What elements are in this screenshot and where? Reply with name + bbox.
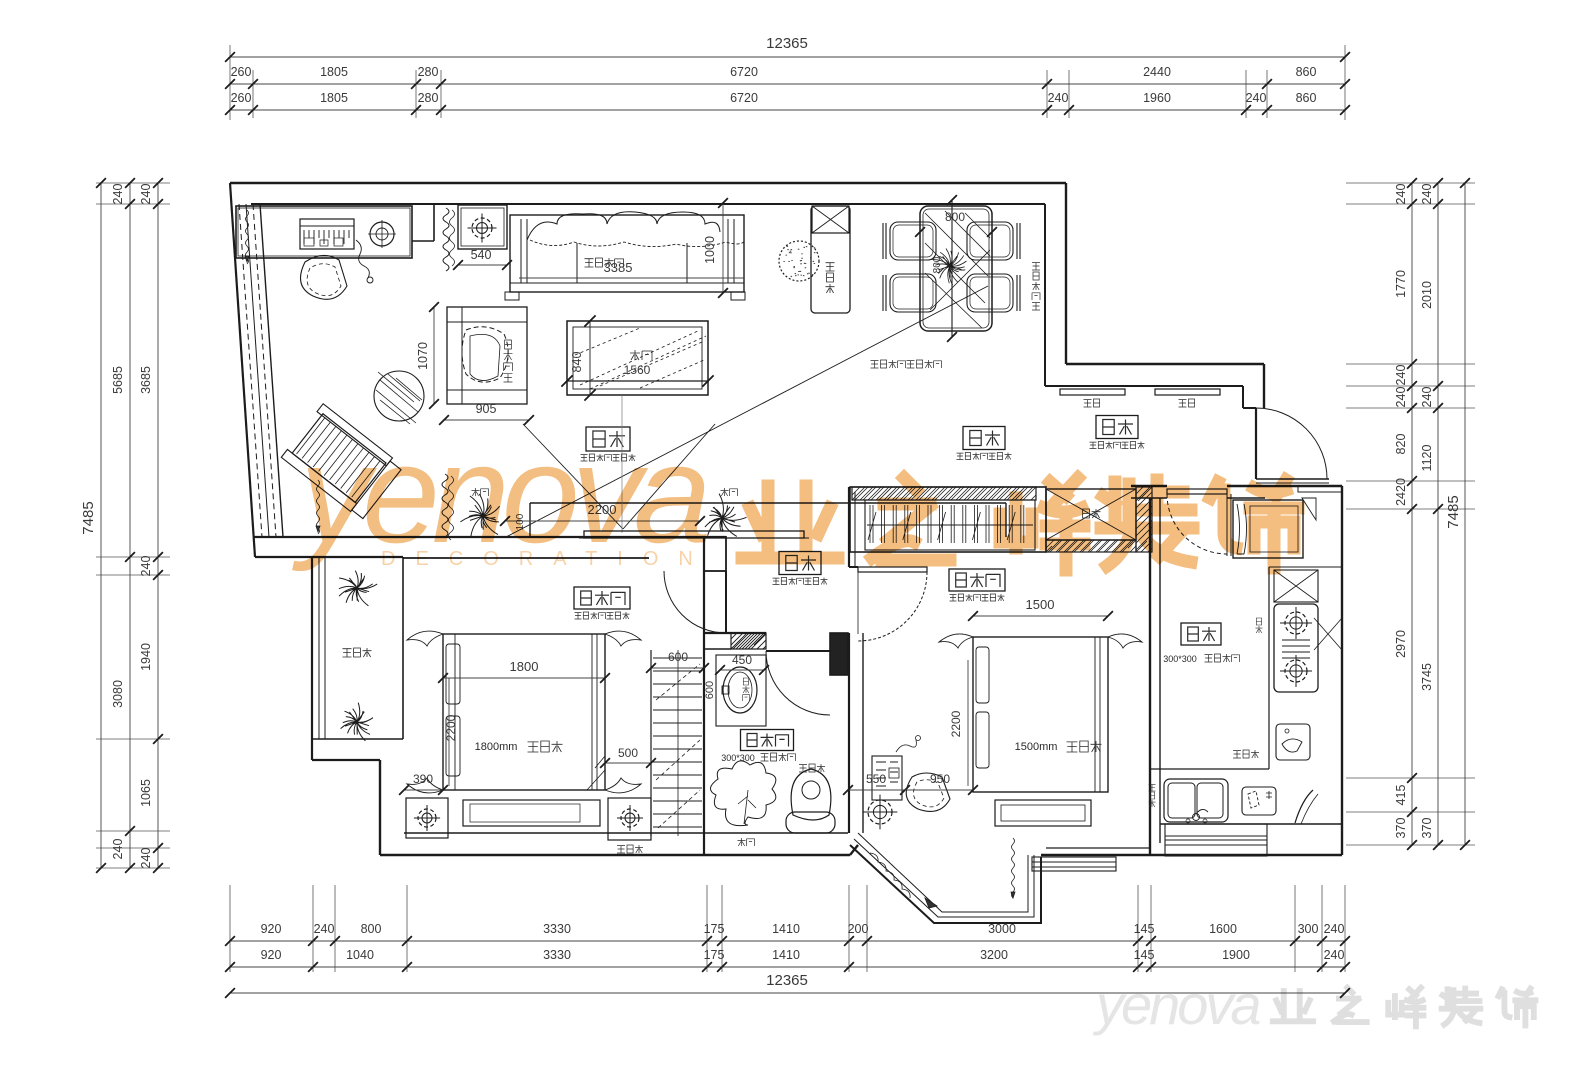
svg-text:1940: 1940: [139, 643, 153, 671]
svg-text:DECORATION: DECORATION: [381, 548, 713, 570]
svg-text:1070: 1070: [416, 342, 430, 370]
svg-text:1500mm: 1500mm: [1015, 741, 1058, 753]
svg-text:1805: 1805: [320, 91, 348, 105]
svg-text:370: 370: [1394, 818, 1408, 839]
svg-text:240: 240: [1246, 91, 1267, 105]
svg-text:300: 300: [1298, 922, 1319, 936]
svg-text:860: 860: [1296, 91, 1317, 105]
svg-text:280: 280: [418, 65, 439, 79]
svg-text:240: 240: [1324, 948, 1345, 962]
svg-text:3200: 3200: [980, 948, 1008, 962]
svg-text:840: 840: [570, 352, 584, 373]
svg-text:2200: 2200: [949, 710, 963, 737]
svg-text:1560: 1560: [624, 363, 651, 377]
svg-text:550: 550: [866, 772, 886, 786]
svg-text:3745: 3745: [1420, 663, 1434, 691]
svg-text:1770: 1770: [1394, 270, 1408, 298]
svg-text:175: 175: [704, 922, 725, 936]
svg-text:600: 600: [668, 650, 688, 664]
svg-text:260: 260: [231, 91, 252, 105]
svg-text:2420: 2420: [1394, 478, 1408, 506]
svg-text:1065: 1065: [139, 779, 153, 807]
svg-text:450: 450: [732, 653, 752, 667]
svg-text:390: 390: [413, 772, 433, 786]
svg-text:7485: 7485: [1445, 495, 1462, 528]
svg-text:1410: 1410: [772, 922, 800, 936]
svg-text:920: 920: [261, 922, 282, 936]
svg-text:3685: 3685: [139, 366, 153, 394]
svg-text:1800mm: 1800mm: [475, 741, 518, 753]
svg-text:240: 240: [139, 184, 153, 205]
svg-text:260: 260: [231, 65, 252, 79]
svg-text:6720: 6720: [730, 65, 758, 79]
svg-text:12365: 12365: [766, 35, 808, 52]
svg-text:800: 800: [361, 922, 382, 936]
svg-text:1600: 1600: [1209, 922, 1237, 936]
svg-text:1040: 1040: [346, 948, 374, 962]
svg-text:3385: 3385: [604, 260, 633, 275]
svg-text:800: 800: [945, 210, 965, 224]
svg-text:240: 240: [139, 848, 153, 869]
svg-text:240: 240: [1394, 365, 1408, 386]
svg-text:2440: 2440: [1143, 65, 1171, 79]
svg-text:240: 240: [1048, 91, 1069, 105]
svg-text:6720: 6720: [730, 91, 758, 105]
svg-text:1120: 1120: [1420, 445, 1434, 472]
svg-text:3000: 3000: [988, 922, 1016, 936]
svg-text:240: 240: [1420, 184, 1434, 205]
svg-text:860: 860: [1296, 65, 1317, 79]
svg-text:7485: 7485: [80, 501, 97, 534]
svg-text:240: 240: [111, 184, 125, 205]
svg-text:600: 600: [704, 681, 716, 699]
svg-text:240: 240: [1394, 184, 1408, 205]
svg-text:820: 820: [1394, 434, 1408, 455]
svg-text:240: 240: [111, 839, 125, 860]
svg-text:1960: 1960: [1143, 91, 1171, 105]
svg-text:5685: 5685: [111, 366, 125, 394]
svg-text:12365: 12365: [766, 972, 808, 989]
svg-text:500: 500: [618, 746, 638, 760]
svg-text:1805: 1805: [320, 65, 348, 79]
svg-text:3330: 3330: [543, 922, 571, 936]
svg-text:2970: 2970: [1394, 630, 1408, 658]
svg-text:1000: 1000: [703, 236, 717, 264]
svg-text:905: 905: [476, 402, 497, 416]
svg-text:1900: 1900: [1222, 948, 1250, 962]
svg-text:1410: 1410: [772, 948, 800, 962]
svg-text:370: 370: [1420, 818, 1434, 839]
svg-text:3080: 3080: [111, 680, 125, 708]
svg-text:175: 175: [704, 948, 725, 962]
svg-text:2010: 2010: [1420, 281, 1434, 309]
svg-text:280: 280: [418, 91, 439, 105]
svg-text:2200: 2200: [444, 714, 458, 741]
svg-text:240: 240: [1420, 387, 1434, 408]
svg-text:950: 950: [930, 772, 950, 786]
svg-text:1800: 1800: [510, 659, 539, 674]
svg-text:300*300: 300*300: [1163, 654, 1197, 664]
svg-text:920: 920: [261, 948, 282, 962]
svg-text:240: 240: [139, 556, 153, 577]
svg-text:200: 200: [848, 922, 869, 936]
svg-text:540: 540: [471, 248, 492, 262]
svg-text:3330: 3330: [543, 948, 571, 962]
svg-text:240: 240: [1394, 387, 1408, 408]
svg-text:145: 145: [1134, 922, 1155, 936]
svg-text:240: 240: [1324, 922, 1345, 936]
svg-text:145: 145: [1134, 948, 1155, 962]
svg-text:yenova: yenova: [1092, 973, 1260, 1036]
svg-text:415: 415: [1394, 785, 1408, 806]
svg-text:240: 240: [314, 922, 335, 936]
svg-text:1500: 1500: [1026, 597, 1055, 612]
